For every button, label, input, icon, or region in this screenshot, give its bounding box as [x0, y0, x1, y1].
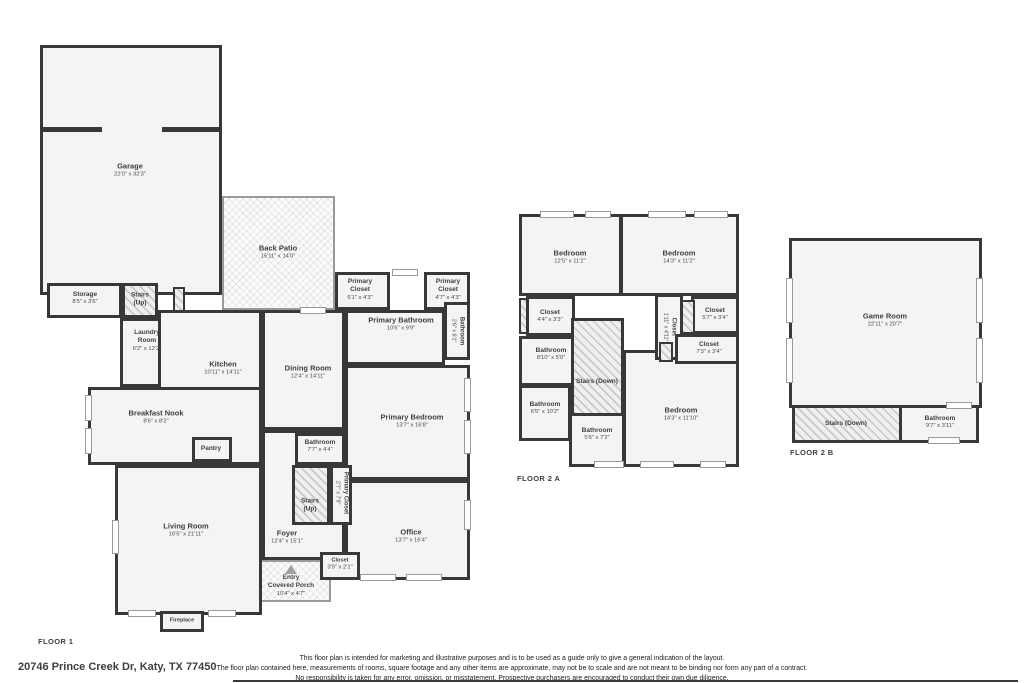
room-name: Bathroom [582, 427, 613, 435]
room-dims: 2'7" x 7'9" [334, 472, 341, 514]
window [928, 437, 960, 444]
room-label-2a-stairs-down: Stairs (Down) [576, 378, 618, 386]
room-label-kitchen: Kitchen 10'11" x 14'11" [204, 359, 241, 376]
room-dims: 4'4" x 3'3" [537, 317, 562, 325]
room-name: Garage [114, 161, 146, 171]
room-label-storage: Storage 8'5" x 3'6" [72, 291, 97, 307]
room-name: Foyer [271, 528, 303, 538]
room-label-stairs-up-b: Stairs (Up) [297, 498, 323, 515]
room-dims: 4'7" x 4'3" [430, 295, 466, 303]
window [640, 461, 674, 468]
window [208, 610, 236, 617]
room-name: Breakfast Nook [128, 408, 183, 418]
room-dims: 8'5" x 3'6" [72, 299, 97, 307]
window [585, 211, 611, 218]
room-label-bathroom-hall: Bathroom 7'7" x 4'4" [305, 439, 336, 455]
window [976, 278, 983, 323]
window [464, 500, 471, 530]
room-name: Closet [669, 313, 677, 342]
window [694, 211, 728, 218]
room-label-2b-stairs-down: Stairs (Down) [825, 420, 867, 428]
room-label-2a-closet-3: Closet 5'7" x 3'4" [702, 307, 727, 323]
stairs-hatch-strip [659, 342, 673, 362]
room-name: Primary Closet [342, 278, 378, 295]
room-label-laundry: Laundry Room 6'2" x 12'2" [127, 329, 167, 353]
room-name: Primary Closet [341, 472, 349, 514]
window [700, 461, 726, 468]
room-dims: 22'0" x 32'3" [114, 171, 146, 179]
floor-plan-canvas: Garage 22'0" x 32'3" Back Patio 15'11" x… [0, 0, 1024, 683]
room-label-2a-bathroom-1: Bathroom 8'10" x 5'0" [536, 347, 567, 363]
floor-2b-label: FLOOR 2 B [790, 448, 834, 457]
window [392, 269, 418, 276]
room-dims: 7'7" x 4'4" [305, 447, 336, 455]
room-name: Bedroom [663, 248, 696, 258]
room-name: Kitchen [204, 359, 241, 369]
disclaimer-line-1: This floor plan is intended for marketin… [300, 655, 725, 662]
room-name: Bedroom [664, 405, 699, 415]
room-name: Bathroom [457, 317, 465, 345]
room-dims: 1'11" x 4'11" [662, 313, 669, 342]
room-name: Closet [696, 341, 721, 349]
garage-wall-segment [162, 127, 222, 132]
room-name: Dining Room [285, 363, 332, 373]
window [648, 211, 686, 218]
garage-wall-segment [40, 127, 102, 132]
room-name: Fireplace [170, 617, 195, 624]
room-name: Primary Bathroom [368, 315, 433, 325]
room-dims: 13'7" x 16'8" [381, 422, 444, 430]
room-name: Stairs (Down) [825, 420, 867, 428]
room-dims: 2'6" x 6'1" [450, 317, 457, 345]
patio-door [300, 307, 326, 314]
window [976, 338, 983, 383]
window [360, 574, 396, 581]
room-label-entry-porch: Entry Covered Porch 10'4" x 4'7" [268, 574, 314, 598]
room-label-stairs-up-a: Stairs (Up) [127, 292, 153, 309]
room-name: Office [395, 527, 427, 537]
room-dims: 6'1" x 4'3" [342, 295, 378, 303]
room-name: Stairs (Up) [297, 498, 323, 515]
room-label-foyer: Foyer 12'4" x 15'1" [271, 528, 303, 545]
room-label-2a-closet-1: Closet 4'4" x 3'3" [537, 309, 562, 325]
room-name: Bathroom [536, 347, 567, 355]
room-name: Bathroom [530, 401, 561, 409]
room-dims: 15'11" x 14'0" [259, 253, 297, 261]
room-label-2a-closet-4: Closet 7'3" x 3'4" [696, 341, 721, 357]
room-name: Bedroom [554, 248, 587, 258]
room-label-bathroom-small: Bathroom 2'6" x 6'1" [450, 317, 465, 345]
floor-2a-label: FLOOR 2 A [517, 474, 560, 483]
door-opening [946, 402, 972, 409]
footer-divider [233, 680, 1018, 682]
window [406, 574, 442, 581]
room-name: Entry [268, 574, 314, 582]
room-dims: 9'7" x 3'11" [925, 423, 956, 431]
room-label-closet-entry: Closet 3'9" x 2'1" [327, 558, 352, 573]
window [85, 428, 92, 454]
room-label-office: Office 13'7" x 16'4" [395, 527, 427, 544]
room-label-2b-game-room: Game Room 22'11" x 20'7" [863, 311, 907, 328]
room-dims: 6'2" x 12'2" [127, 346, 167, 354]
room-name: Closet [327, 558, 352, 565]
room-name: Bathroom [305, 439, 336, 447]
window [786, 278, 793, 323]
room-label-2b-bathroom: Bathroom 9'7" x 3'11" [925, 415, 956, 431]
room-label-primary-closet-a: Primary Closet 6'1" x 4'3" [342, 278, 378, 302]
room-label-2a-bedroom-2: Bedroom 14'3" x 11'2" [663, 248, 696, 265]
room-dims: 8'10" x 5'0" [536, 355, 567, 363]
room-label-pantry: Pantry [201, 445, 221, 453]
floor-1-label: FLOOR 1 [38, 637, 73, 646]
window [85, 395, 92, 421]
room-label-2a-bedroom-1: Bedroom 12'5" x 11'2" [554, 248, 587, 265]
room-label-2a-closet-2: Closet 1'11" x 4'11" [662, 313, 677, 342]
room-label-dining: Dining Room 12'4" x 14'11" [285, 363, 332, 380]
room-dims: 10'6" x 9'9" [368, 325, 433, 333]
room-stairs-up-b [292, 465, 330, 525]
room-label-fireplace: Fireplace [170, 617, 195, 624]
room-name: Stairs (Down) [576, 378, 618, 386]
window [464, 420, 471, 454]
room-name-2: Covered Porch [268, 582, 314, 590]
room-dims: 12'4" x 15'1" [271, 538, 303, 546]
room-dims: 14'3" x 11'10" [664, 415, 699, 423]
room-name: Bathroom [925, 415, 956, 423]
room-name: Stairs (Up) [127, 292, 153, 309]
room-2a-stairs-down [571, 318, 624, 416]
disclaimer-text: This floor plan is intended for marketin… [152, 654, 872, 683]
room-dims: 7'3" x 3'4" [696, 349, 721, 357]
room-dims: 22'11" x 20'7" [863, 321, 907, 329]
room-name: Primary Bedroom [381, 412, 444, 422]
room-label-primary-bathroom: Primary Bathroom 10'6" x 9'9" [368, 315, 433, 332]
room-dims: 8'6" x 8'2" [128, 418, 183, 426]
window [128, 610, 156, 617]
room-label-2a-bathroom-3: Bathroom 5'6" x 7'2" [582, 427, 613, 443]
room-name: Laundry Room [127, 329, 167, 346]
disclaimer-line-2: The floor plan contained here, measureme… [217, 665, 808, 672]
room-dims: 3'9" x 2'1" [327, 565, 352, 573]
room-name: Storage [72, 291, 97, 299]
room-label-primary-bedroom: Primary Bedroom 13'7" x 16'8" [381, 412, 444, 429]
room-name: Back Patio [259, 243, 297, 253]
window [594, 461, 624, 468]
room-breakfast-nook [88, 387, 262, 465]
window [786, 338, 793, 383]
room-dims: 10'11" x 14'11" [204, 369, 241, 377]
room-dims: 12'5" x 11'2" [554, 258, 587, 266]
room-label-living: Living Room 16'5" x 21'11" [163, 521, 208, 538]
room-dims: 10'4" x 4'7" [268, 591, 314, 599]
room-dims: 5'6" x 7'2" [582, 435, 613, 443]
room-label-primary-closet-c: Primary Closet 2'7" x 7'9" [334, 472, 349, 514]
entry-marker-icon [285, 565, 297, 574]
room-label-2a-bathroom-2: Bathroom 6'5" x 10'2" [530, 401, 561, 417]
room-name: Closet [702, 307, 727, 315]
room-label-2a-bedroom-3: Bedroom 14'3" x 11'10" [664, 405, 699, 422]
room-name: Game Room [863, 311, 907, 321]
room-name: Pantry [201, 445, 221, 453]
room-name: Closet [537, 309, 562, 317]
room-name: Primary Closet [430, 278, 466, 295]
room-label-breakfast-nook: Breakfast Nook 8'6" x 8'2" [128, 408, 183, 425]
stairs-hatch-strip [681, 300, 695, 334]
room-dims: 16'5" x 21'11" [163, 531, 208, 539]
room-dims: 14'3" x 11'2" [663, 258, 696, 266]
room-dims: 6'5" x 10'2" [530, 409, 561, 417]
room-name: Living Room [163, 521, 208, 531]
room-dims: 12'4" x 14'11" [285, 373, 332, 381]
room-label-back-patio: Back Patio 15'11" x 14'0" [259, 243, 297, 260]
window [464, 378, 471, 412]
window [540, 211, 574, 218]
room-dims: 5'7" x 3'4" [702, 315, 727, 323]
room-label-garage: Garage 22'0" x 32'3" [114, 161, 146, 178]
room-dims: 13'7" x 16'4" [395, 537, 427, 545]
room-living [115, 465, 262, 615]
window [112, 520, 119, 554]
room-label-primary-closet-b: Primary Closet 4'7" x 4'3" [430, 278, 466, 302]
